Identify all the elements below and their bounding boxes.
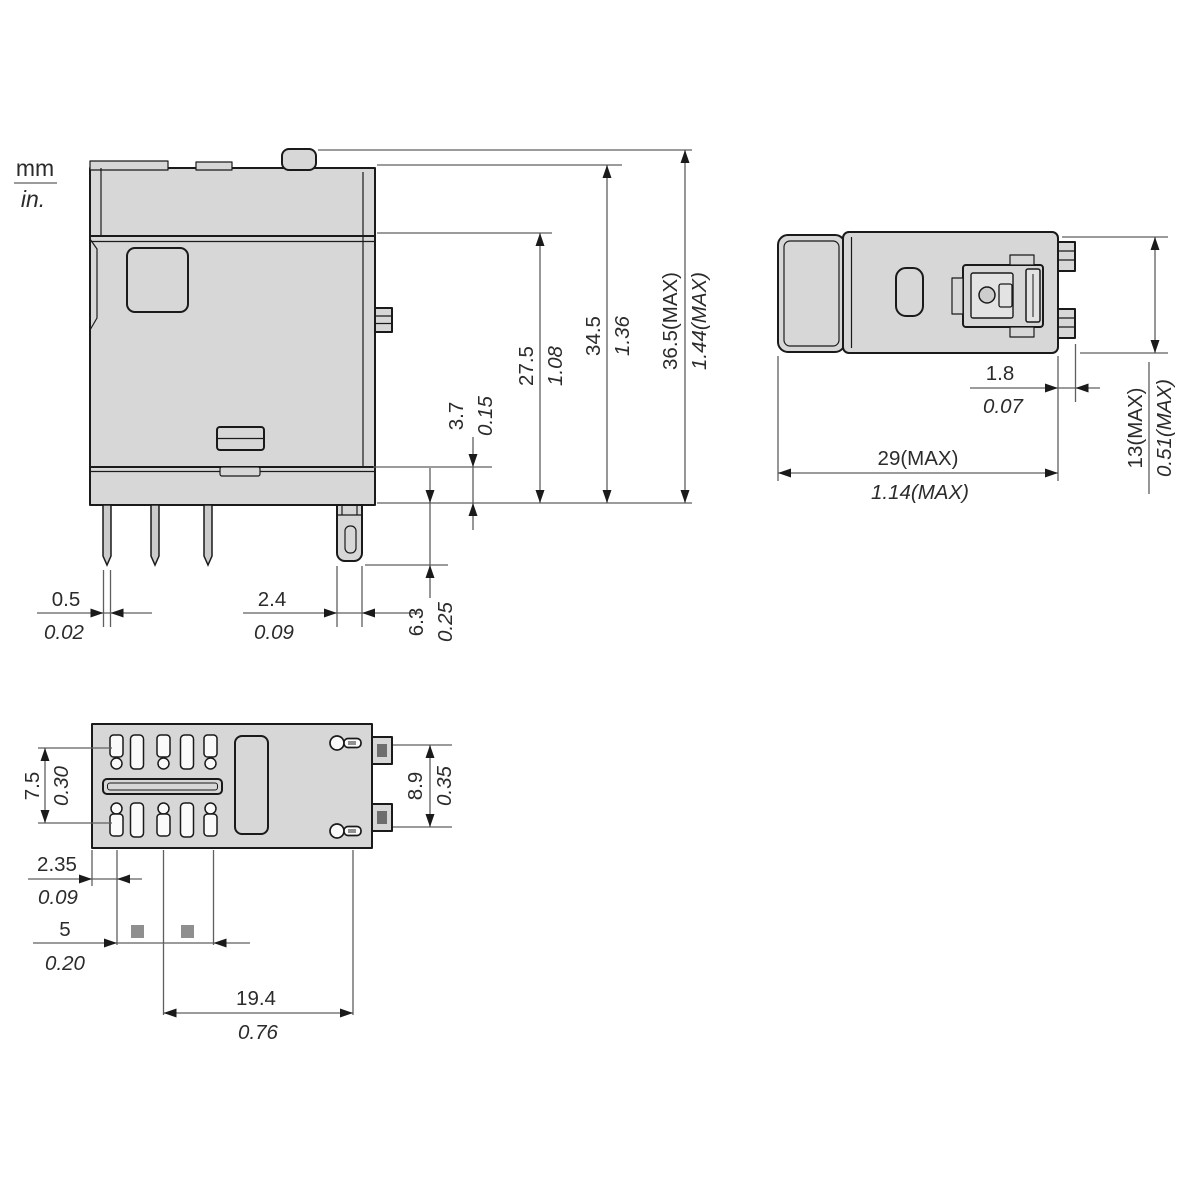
dim-tab-row-spacing-in: 0.35 — [433, 765, 456, 805]
arrowhead — [91, 609, 104, 618]
dim-base-step: 3.7 0.15 — [445, 395, 497, 435]
arrowhead — [1045, 384, 1058, 393]
dim-edge-to-pin-in: 0.09 — [38, 886, 78, 909]
arrowhead — [426, 490, 435, 503]
dim-tab-row-spacing-mm: 8.9 — [404, 772, 427, 801]
arrowhead — [426, 814, 435, 827]
dim-cover-height-in: 1.08 — [544, 345, 567, 385]
dim-overall-height-in: 1.44(MAX) — [688, 272, 711, 370]
side-view: 1.8 0.07 29(MAX) 1.14(MAX) 13(MAX) 0.51(… — [778, 232, 1176, 504]
side-view-part — [778, 232, 1075, 353]
dim-pin-thickness-mm: 0.5 — [52, 588, 81, 611]
dim-terminal-length-in: 0.25 — [434, 601, 457, 641]
dim-edge-to-pin-mm: 2.35 — [37, 853, 77, 876]
arrowhead — [164, 1009, 177, 1018]
arrowhead — [324, 609, 337, 618]
units-inch-label: in. — [21, 186, 45, 212]
dim-body-height: 34.5 1.36 — [582, 315, 634, 355]
top-step-left — [90, 161, 168, 170]
dim-body-height-mm: 34.5 — [582, 316, 605, 356]
arrowhead — [469, 454, 478, 467]
dim-overall-height-mm: 36.5(MAX) — [659, 272, 682, 370]
dim-tab-width-mm: 2.4 — [258, 588, 287, 611]
dim-pin-thickness-in: 0.02 — [44, 621, 84, 644]
front-view-part — [90, 149, 392, 565]
dim-tab-thickness-in: 0.07 — [983, 395, 1024, 418]
arrowhead — [214, 939, 227, 948]
dim-row-spacing: 7.5 0.30 — [21, 765, 73, 805]
dim-base-step-in: 0.15 — [474, 395, 497, 435]
solder-pins — [103, 505, 212, 565]
arrowhead — [340, 1009, 353, 1018]
dim-tab-thickness-mm: 1.8 — [986, 362, 1015, 385]
arrowhead — [1076, 384, 1089, 393]
arrowhead — [41, 810, 50, 823]
tab-terminal — [337, 505, 362, 561]
arrowhead — [681, 490, 690, 503]
arrowhead — [1045, 469, 1058, 478]
dim-terminal-length-mm: 6.3 — [405, 608, 428, 637]
arrowhead — [79, 875, 92, 884]
top-step-mid — [196, 162, 232, 170]
pin — [103, 505, 111, 565]
arrowhead — [1151, 340, 1160, 353]
arrowhead — [104, 939, 117, 948]
dim-row-spacing-mm: 7.5 — [21, 772, 44, 801]
arrowhead — [469, 503, 478, 516]
drawing-svg: mm in. — [0, 0, 1200, 1200]
pin-marker-square — [181, 925, 194, 938]
dim-tab-width-in: 0.09 — [254, 621, 294, 644]
dim-base-step-mm: 3.7 — [445, 402, 468, 431]
tab-terminals-bottom — [372, 737, 392, 831]
arrowhead — [426, 565, 435, 578]
arrowhead — [681, 150, 690, 163]
pin-marker-square — [131, 925, 144, 938]
mounting-clip — [778, 235, 845, 352]
side-rib-tab — [375, 308, 392, 332]
units-legend: mm in. — [14, 155, 57, 212]
arrowhead — [117, 875, 130, 884]
dim-pin-pitch-mm: 5 — [59, 918, 70, 941]
dim-row-spacing-in: 0.30 — [50, 765, 73, 805]
units-mm-label: mm — [16, 155, 54, 181]
arrowhead — [603, 165, 612, 178]
arrowhead — [111, 609, 124, 618]
front-view: 0.5 0.02 2.4 0.09 6.3 0.25 3.7 0.15 27.5… — [37, 149, 711, 644]
pin — [204, 505, 212, 565]
relay-body — [90, 168, 375, 505]
dim-terminal-length: 6.3 0.25 — [405, 601, 457, 641]
dim-overall-depth: 13(MAX) 0.51(MAX) — [1124, 379, 1176, 477]
arrowhead — [778, 469, 791, 478]
dim-cover-height-mm: 27.5 — [515, 346, 538, 386]
arrowhead — [536, 233, 545, 246]
arrowhead — [426, 745, 435, 758]
dim-overall-depth-mm: 13(MAX) — [1124, 388, 1147, 469]
push-button — [282, 149, 316, 170]
dim-cover-height: 27.5 1.08 — [515, 345, 567, 385]
dim-overall-depth-in: 0.51(MAX) — [1153, 379, 1176, 477]
dim-pin-span-in: 0.76 — [238, 1021, 278, 1044]
dim-overall-width-mm: 29(MAX) — [878, 447, 959, 470]
dim-body-height-in: 1.36 — [611, 315, 634, 355]
bottom-view: 7.5 0.30 8.9 0.35 2.35 0.09 5 0.20 19.4 … — [21, 724, 456, 1044]
dim-overall-width-in: 1.14(MAX) — [871, 481, 969, 504]
arrowhead — [1151, 237, 1160, 250]
dim-pin-span-mm: 19.4 — [236, 987, 276, 1010]
arrowhead — [536, 490, 545, 503]
arrowhead — [603, 490, 612, 503]
base-notch — [220, 467, 260, 476]
pin — [151, 505, 159, 565]
dim-pin-pitch-in: 0.20 — [45, 952, 85, 975]
arrowhead — [41, 748, 50, 761]
dimensional-drawing: mm in. — [0, 0, 1200, 1200]
arrowhead — [362, 609, 375, 618]
bottom-view-part — [92, 724, 392, 848]
tab-terminals-side — [1058, 242, 1075, 338]
